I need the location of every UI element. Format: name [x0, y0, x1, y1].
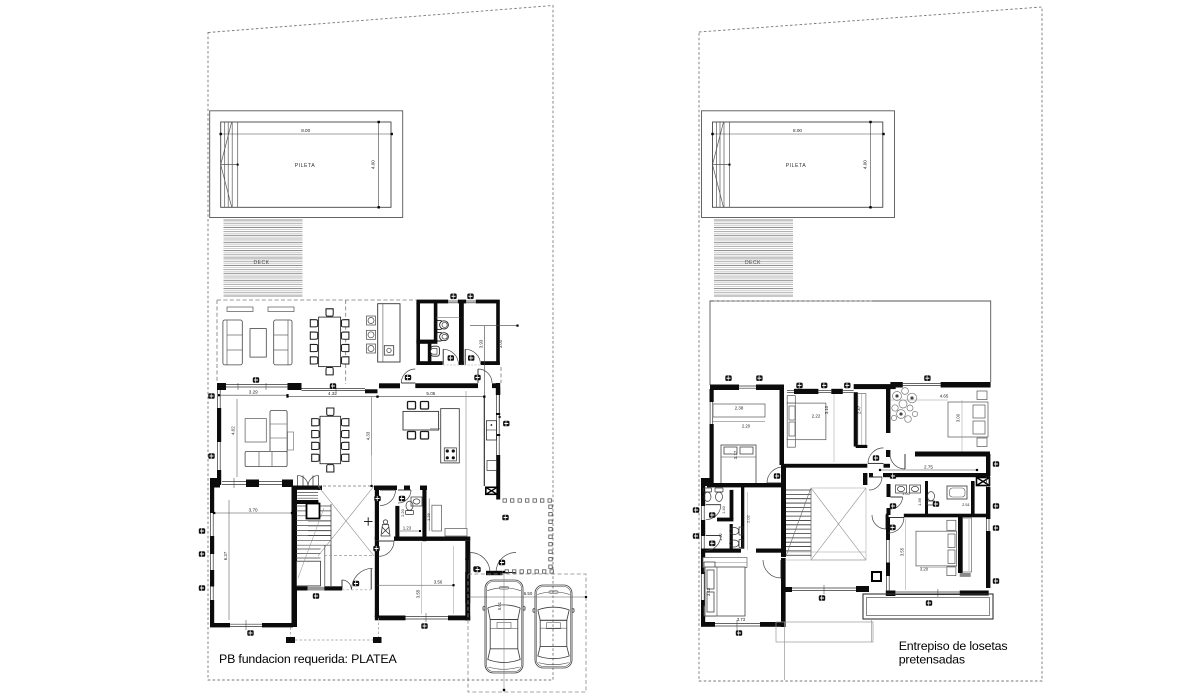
- svg-text:5.01: 5.01: [497, 601, 502, 610]
- svg-text:3.70: 3.70: [249, 507, 258, 512]
- svg-text:3.73: 3.73: [737, 617, 746, 622]
- svg-text:4.32: 4.32: [328, 391, 337, 396]
- svg-text:4.00: 4.00: [371, 160, 376, 169]
- svg-text:1.36: 1.36: [917, 497, 922, 506]
- svg-text:3.55: 3.55: [900, 547, 905, 556]
- svg-text:3.29: 3.29: [249, 390, 258, 395]
- svg-text:2.51: 2.51: [962, 502, 971, 507]
- svg-text:PILETA: PILETA: [786, 163, 807, 169]
- svg-text:3.17: 3.17: [733, 450, 738, 459]
- svg-text:3.56: 3.56: [434, 580, 443, 585]
- svg-text:1.22: 1.22: [719, 533, 723, 540]
- svg-text:6.37: 6.37: [223, 551, 228, 560]
- svg-text:2.20: 2.20: [400, 508, 405, 517]
- svg-text:2.47: 2.47: [857, 405, 862, 414]
- svg-text:4.65: 4.65: [940, 394, 949, 399]
- svg-text:DECK: DECK: [745, 260, 761, 266]
- svg-text:1.23: 1.23: [403, 526, 412, 531]
- svg-text:2.22: 2.22: [812, 414, 821, 419]
- svg-text:1.00: 1.00: [902, 491, 911, 496]
- svg-text:pretensadas: pretensadas: [899, 653, 965, 667]
- svg-text:1.39: 1.39: [426, 512, 431, 521]
- svg-text:3.93: 3.93: [478, 339, 483, 348]
- svg-text:2.20: 2.20: [742, 424, 751, 429]
- svg-text:3.10: 3.10: [824, 405, 829, 414]
- svg-text:DECK: DECK: [254, 260, 270, 266]
- svg-text:PILETA: PILETA: [295, 163, 316, 169]
- svg-text:3.55: 3.55: [416, 589, 421, 598]
- svg-text:1.40: 1.40: [722, 506, 726, 513]
- svg-text:2.75: 2.75: [924, 464, 933, 469]
- svg-text:6.50: 6.50: [524, 591, 533, 596]
- svg-text:4.00: 4.00: [863, 160, 868, 169]
- svg-text:3.43: 3.43: [706, 587, 711, 596]
- svg-text:3.00: 3.00: [498, 339, 503, 348]
- svg-text:8.00: 8.00: [301, 128, 310, 133]
- svg-text:4.33: 4.33: [365, 431, 370, 440]
- svg-text:2.02: 2.02: [746, 514, 751, 523]
- svg-text:4.02: 4.02: [231, 426, 236, 435]
- svg-text:2.38: 2.38: [735, 406, 744, 411]
- svg-text:PB fundacion requerida: PLATEA: PB fundacion requerida: PLATEA: [219, 652, 398, 666]
- svg-text:8.00: 8.00: [793, 128, 802, 133]
- svg-text:5.05: 5.05: [426, 391, 435, 396]
- svg-text:3.00: 3.00: [956, 413, 961, 422]
- svg-text:Entrepiso de losetas: Entrepiso de losetas: [899, 639, 1008, 653]
